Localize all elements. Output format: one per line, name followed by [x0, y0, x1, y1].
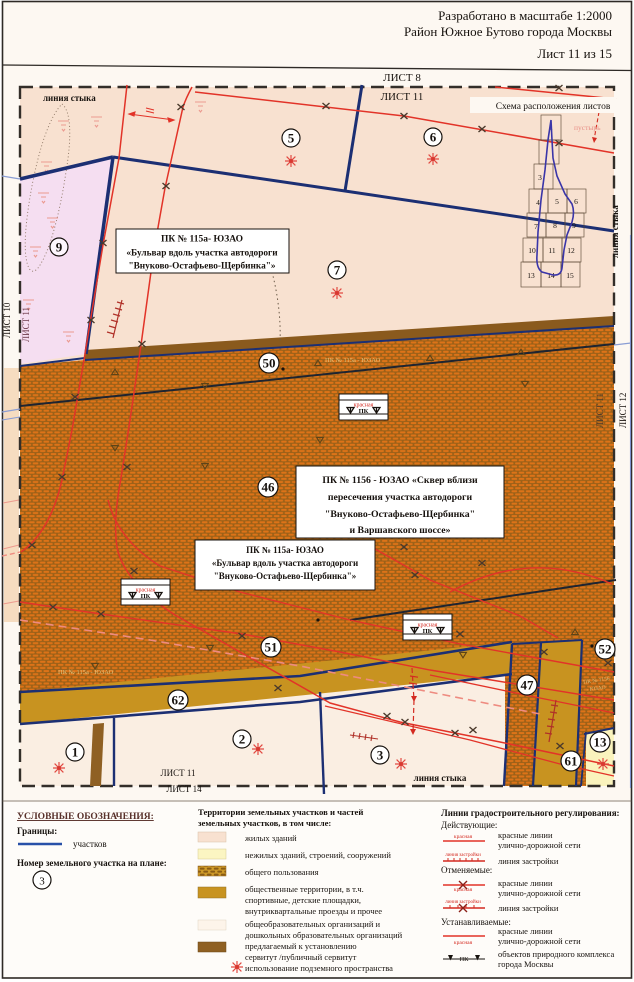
- svg-text:ПК № 115а - ЮЗАО: ПК № 115а - ЮЗАО: [325, 357, 381, 364]
- svg-text:"Внуково-Остафьево-Щербинка"»: "Внуково-Остафьево-Щербинка"»: [128, 261, 275, 272]
- svg-text:9: 9: [56, 240, 63, 255]
- svg-text:улично-дорожной сети: улично-дорожной сети: [498, 888, 581, 898]
- svg-text:1: 1: [72, 745, 79, 760]
- svg-text:линия застройки: линия застройки: [498, 903, 559, 913]
- svg-text:линия стыка: линия стыка: [610, 205, 620, 258]
- svg-text:«Бульвар вдоль участка автодор: «Бульвар вдоль участка автодороги: [126, 249, 278, 259]
- svg-text:3: 3: [39, 876, 45, 888]
- svg-text:спортивные, детские площадки,: спортивные, детские площадки,: [245, 895, 361, 905]
- svg-text:11: 11: [548, 246, 555, 255]
- svg-text:Линии градостроительного регул: Линии градостроительного регулирования:: [441, 808, 620, 818]
- svg-text:ПК № 115а- ЮЗАО: ПК № 115а- ЮЗАО: [161, 235, 243, 245]
- svg-text:"Внуково-Остафьево-Щербинка": "Внуково-Остафьево-Щербинка": [325, 509, 475, 520]
- svg-text:красная: красная: [454, 887, 473, 893]
- svg-text:Отменяемые:: Отменяемые:: [441, 865, 492, 875]
- svg-text:участков: участков: [73, 839, 107, 849]
- svg-text:Схема расположения листов: Схема расположения листов: [496, 102, 611, 112]
- svg-text:предлагаемый к установлению: предлагаемый к установлению: [245, 941, 357, 951]
- svg-text:ПК: ПК: [423, 628, 433, 635]
- svg-text:15: 15: [566, 271, 574, 280]
- svg-text:46: 46: [262, 480, 276, 495]
- svg-text:4: 4: [536, 198, 540, 207]
- svg-text:Действующие:: Действующие:: [441, 820, 497, 830]
- svg-text:3: 3: [538, 173, 542, 182]
- svg-text:улично-дорожной сети: улично-дорожной сети: [498, 936, 581, 946]
- svg-text:62: 62: [172, 693, 185, 708]
- svg-text:12: 12: [567, 246, 575, 255]
- svg-text:ПК: ПК: [359, 408, 369, 415]
- svg-text:Разработано в масштабе 1:2000: Разработано в масштабе 1:2000: [438, 8, 612, 23]
- svg-text:ЛИСТ 11: ЛИСТ 11: [21, 307, 31, 342]
- svg-text:линия стыка: линия стыка: [414, 773, 467, 783]
- svg-text:61: 61: [565, 754, 578, 769]
- svg-text:и Варшавского шоссе»: и Варшавского шоссе»: [349, 525, 450, 536]
- svg-text:ПК № 115а- ЮЗАО: ПК № 115а- ЮЗАО: [246, 545, 324, 555]
- svg-text:"Внуково-Остафьево-Щербинка"»: "Внуково-Остафьево-Щербинка"»: [214, 571, 357, 581]
- svg-text:земельных участков, в том числ: земельных участков, в том числе:: [198, 818, 331, 828]
- svg-text:сервитут /публичный сервитут: сервитут /публичный сервитут: [245, 952, 357, 962]
- svg-text:5: 5: [555, 197, 559, 206]
- svg-text:красные линии: красные линии: [498, 926, 553, 936]
- svg-text:ЛИСТ 12: ЛИСТ 12: [618, 393, 628, 428]
- svg-text:красная: красная: [454, 940, 473, 946]
- svg-text:52: 52: [599, 642, 612, 657]
- svg-text:7: 7: [334, 263, 341, 278]
- svg-text:красные линии: красные линии: [498, 878, 553, 888]
- svg-text:красные линии: красные линии: [498, 830, 553, 840]
- svg-text:дошкольных образовательных орг: дошкольных образовательных организаций: [245, 930, 403, 940]
- svg-text:5: 5: [288, 131, 295, 146]
- svg-text:ЛИСТ 14: ЛИСТ 14: [166, 784, 202, 794]
- svg-text:ЛИСТ 10: ЛИСТ 10: [2, 302, 12, 338]
- svg-text:6: 6: [574, 197, 578, 206]
- svg-text:ЛИСТ 11: ЛИСТ 11: [595, 393, 605, 428]
- svg-text:общественные территории, в т.ч: общественные территории, в т.ч.: [245, 884, 364, 894]
- svg-text:10: 10: [528, 246, 536, 255]
- svg-text:9: 9: [572, 221, 576, 230]
- svg-text:ПК: ПК: [141, 593, 151, 600]
- svg-text:использование подземного прост: использование подземного пространства: [245, 963, 393, 973]
- svg-text:линия стыка: линия стыка: [43, 93, 96, 103]
- svg-text:жилых зданий: жилых зданий: [244, 833, 297, 843]
- svg-text:пересечения участка автодороги: пересечения участка автодороги: [328, 492, 473, 503]
- svg-text:пустырь: пустырь: [574, 123, 601, 132]
- svg-text:13: 13: [527, 271, 535, 280]
- svg-text:2: 2: [239, 732, 246, 747]
- svg-text:50: 50: [263, 356, 276, 371]
- svg-text:6: 6: [430, 130, 437, 145]
- svg-text:Номер земельного участка на пл: Номер земельного участка на плане:: [17, 858, 167, 868]
- svg-text:ЛИСТ 8: ЛИСТ 8: [383, 72, 421, 84]
- svg-text:Территории земельных участков: Территории земельных участков и частей: [198, 807, 363, 817]
- svg-text:линия застройки: линия застройки: [445, 853, 481, 858]
- svg-text:Район Южное Бутово города Моск: Район Южное Бутово города Москвы: [404, 24, 612, 39]
- svg-text:51: 51: [265, 640, 278, 655]
- svg-text:УСЛОВНЫЕ ОБОЗНАЧЕНИЯ:: УСЛОВНЫЕ ОБОЗНАЧЕНИЯ:: [17, 812, 154, 822]
- svg-text:13: 13: [594, 735, 608, 750]
- svg-text:«Бульвар вдоль участка автодор: «Бульвар вдоль участка автодороги: [212, 558, 358, 568]
- svg-text:ПК: ПК: [459, 956, 469, 963]
- svg-text:Лист 11 из 15: Лист 11 из 15: [537, 46, 612, 61]
- svg-text:линия застройки: линия застройки: [445, 900, 481, 905]
- svg-text:красная: красная: [454, 834, 473, 840]
- svg-text:улично-дорожной сети: улично-дорожной сети: [498, 840, 581, 850]
- svg-text:нежилых зданий, строений, соор: нежилых зданий, строений, сооружений: [245, 850, 391, 860]
- svg-text:ЛИСТ 11: ЛИСТ 11: [381, 91, 424, 103]
- svg-text:ПК № 1156 - ЮЗАО «Сквер вблизи: ПК № 1156 - ЮЗАО «Сквер вблизи: [322, 475, 478, 486]
- svg-text:Границы:: Границы:: [17, 826, 57, 836]
- svg-text:ПК № 115а - ЮЗАО: ПК № 115а - ЮЗАО: [58, 669, 114, 676]
- svg-text:8: 8: [553, 221, 557, 230]
- svg-text:47: 47: [521, 678, 535, 693]
- svg-text:города Москвы: города Москвы: [498, 959, 554, 969]
- svg-text:ЛИСТ 11: ЛИСТ 11: [160, 768, 195, 778]
- svg-text:внутриквартальные проезды и пр: внутриквартальные проезды и прочее: [245, 906, 382, 916]
- svg-text:общего пользования: общего пользования: [245, 867, 319, 877]
- svg-text:3: 3: [377, 748, 384, 763]
- svg-text:общеобразовательных организаци: общеобразовательных организаций и: [245, 919, 381, 929]
- svg-text:объектов природного комплекса: объектов природного комплекса: [498, 949, 614, 959]
- svg-text:линия застройки: линия застройки: [498, 856, 559, 866]
